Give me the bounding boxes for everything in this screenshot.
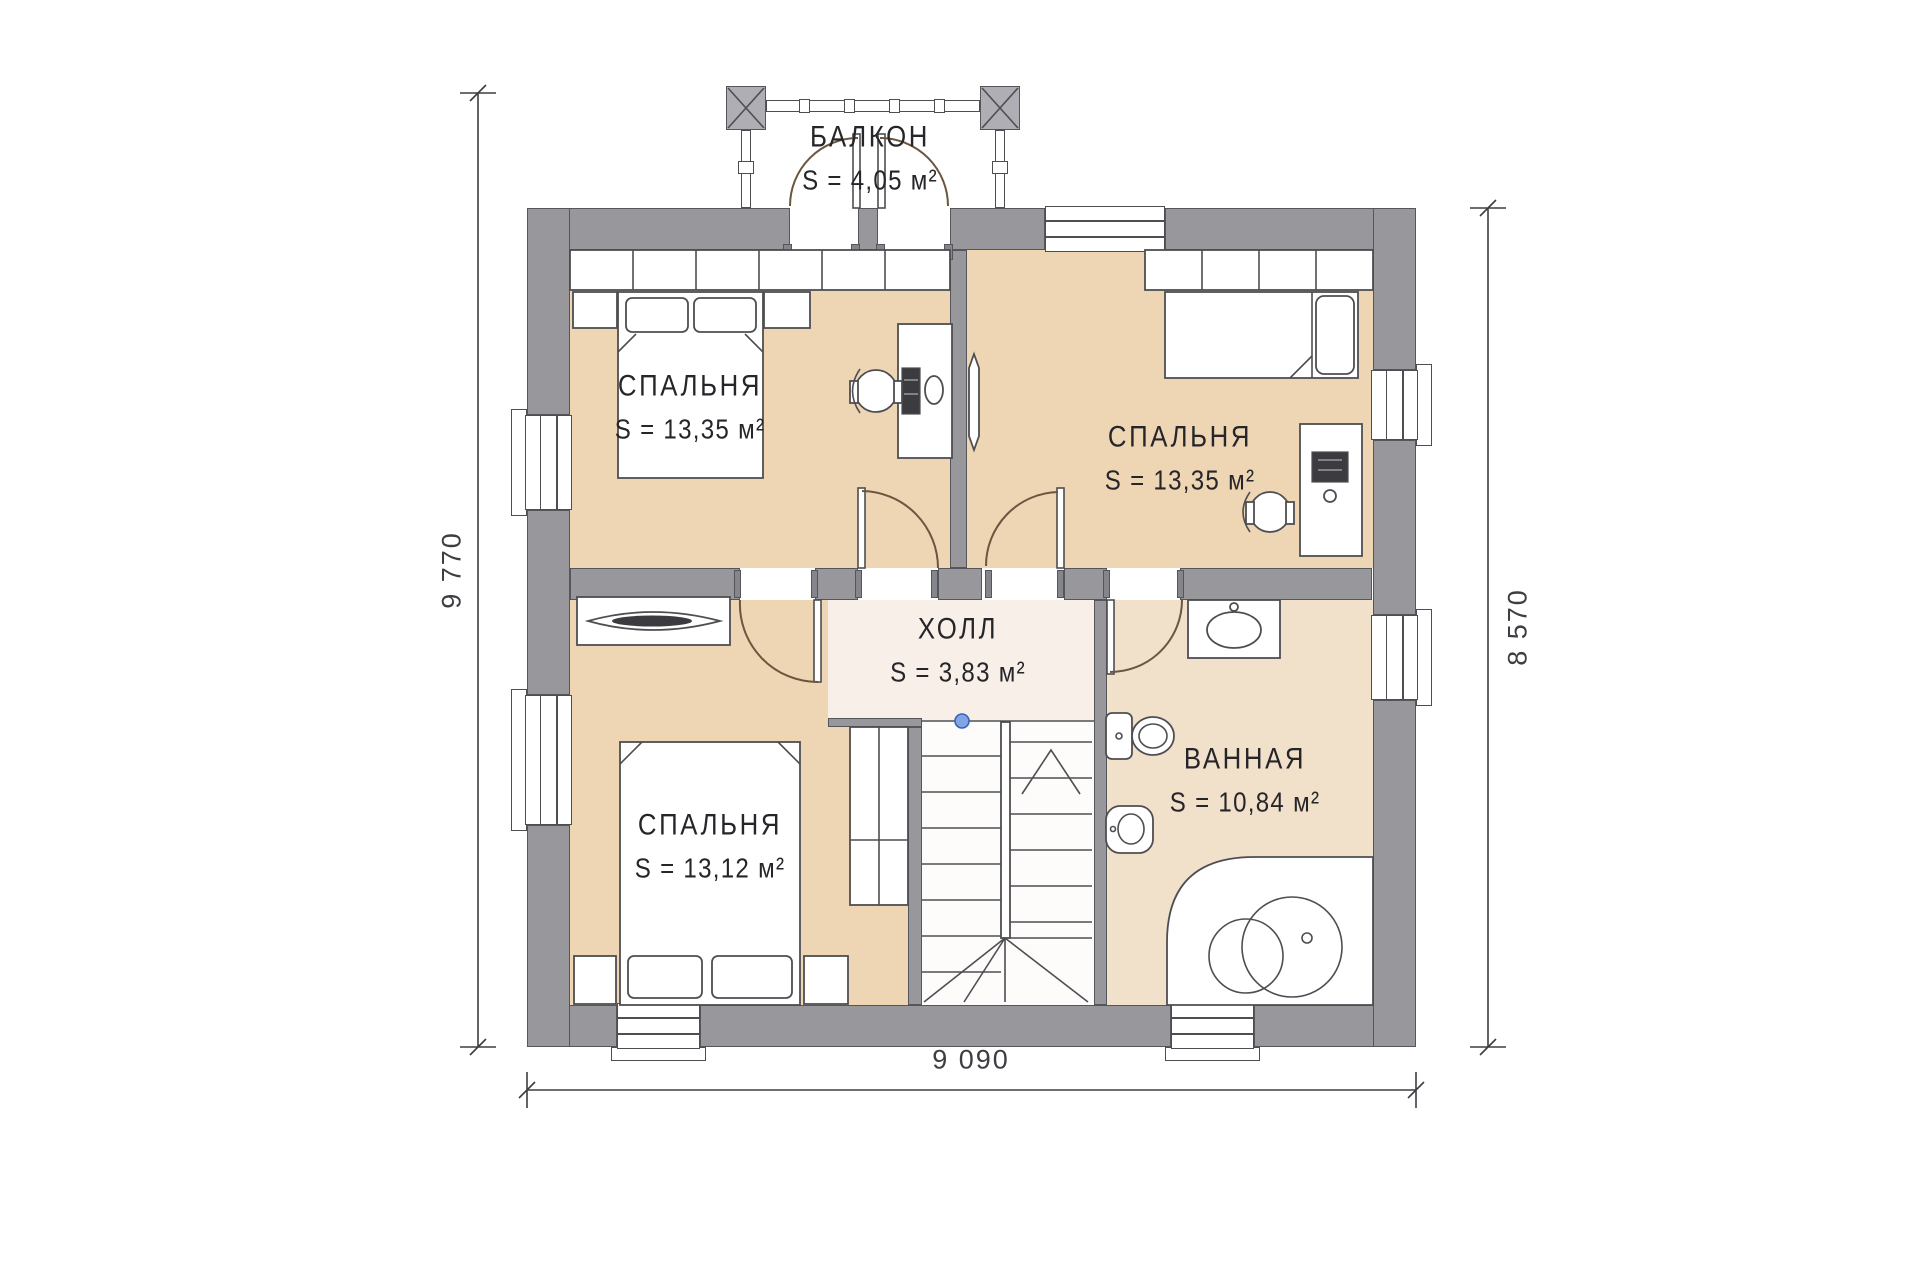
stair-winder-treads [924, 938, 1092, 1002]
bedroom-bottom-left-door-arc [740, 600, 818, 682]
dimension-right-label: 8 570 [1503, 588, 1534, 666]
chair-top-right-seat [1250, 492, 1290, 532]
bedroom-top-right-furniture [969, 250, 1373, 556]
bedroom-top-left-name: СПАЛЬНЯ [615, 364, 766, 409]
bedroom-bottom-left-furniture [574, 597, 908, 1005]
mirror-board-top-right [969, 354, 979, 450]
bedroom-bottom-left-area: S = 13,12 м² [635, 848, 786, 890]
stair-newel-dot [955, 714, 969, 728]
stair-divider [1001, 722, 1010, 938]
vanity-sink [1207, 612, 1261, 648]
chair-tr-armrest-2 [1286, 502, 1294, 524]
vanity-faucet [1230, 603, 1238, 611]
stair-treads-right-flight [1010, 742, 1092, 922]
bedroom-top-right-label: СПАЛЬНЯ S = 13,35 м² [1105, 415, 1256, 502]
hall-area: S = 3,83 м² [890, 652, 1026, 694]
bedroom-top-right-name: СПАЛЬНЯ [1105, 415, 1256, 460]
chair-tr-armrest-1 [1246, 502, 1254, 524]
floor-plan-canvas: БАЛКОН S = 4,05 м² СПАЛЬНЯ S = 13,35 м² … [0, 0, 1929, 1286]
desk-item-top-right [1324, 490, 1336, 502]
dimension-line-right [1470, 200, 1506, 1055]
bidet [1106, 806, 1153, 853]
closet-top-left [570, 250, 950, 290]
balcony-area: S = 4,05 м² [802, 160, 938, 202]
bathroom-label: ВАННАЯ S = 10,84 м² [1170, 737, 1321, 824]
chair-tl-armrest-2 [894, 381, 902, 403]
corner-bathtub [1167, 857, 1373, 1005]
monitor-top-right [1312, 452, 1348, 482]
bathroom-name: ВАННАЯ [1170, 737, 1321, 782]
toilet-tank [1106, 713, 1132, 759]
dimension-line-bottom [519, 1072, 1424, 1108]
bathroom-door-leaf [1107, 600, 1114, 674]
pillow-bl-1 [628, 956, 702, 998]
shelf-decor-core [612, 616, 692, 627]
bedroom-top-right-door-leaf [1057, 488, 1064, 568]
bedroom-top-right-door-arc [986, 492, 1058, 566]
nightstand-tl-west [573, 292, 617, 328]
staircase [922, 714, 1094, 1002]
nightstand-tl-east [764, 292, 810, 328]
bathroom-door-arc [1110, 600, 1182, 672]
bedroom-top-left-area: S = 13,35 м² [615, 409, 766, 451]
dimension-bottom-label: 9 090 [932, 1045, 1010, 1076]
bedroom-bottom-left-name: СПАЛЬНЯ [635, 803, 786, 848]
nightstand-bl-east [804, 956, 848, 1004]
bedroom-top-right-area: S = 13,35 м² [1105, 460, 1256, 502]
stair-direction-arrow [1022, 750, 1080, 794]
pillow-tl-1 [626, 298, 688, 332]
hall-name: ХОЛЛ [890, 607, 1026, 652]
chair-top-left-seat [855, 370, 897, 412]
nightstand-bl-west [574, 956, 616, 1004]
bedroom-bottom-left-door-leaf [814, 600, 821, 682]
pillow-bl-2 [712, 956, 792, 998]
dimension-left-label: 9 770 [437, 531, 468, 609]
pillow-tl-2 [694, 298, 756, 332]
bathroom-area: S = 10,84 м² [1170, 782, 1321, 824]
bedroom-top-left-label: СПАЛЬНЯ S = 13,35 м² [615, 364, 766, 451]
bedroom-top-left-door-arc [862, 491, 938, 568]
desk-lamp-top-left [925, 376, 943, 404]
hall-label: ХОЛЛ S = 3,83 м² [890, 607, 1026, 694]
monitor-top-left [902, 368, 920, 414]
balcony-label: БАЛКОН S = 4,05 м² [802, 115, 938, 202]
balcony-name: БАЛКОН [802, 115, 938, 160]
pillow-tr [1316, 296, 1354, 374]
bedroom-bottom-left-label: СПАЛЬНЯ S = 13,12 м² [635, 803, 786, 890]
bedroom-top-left-door-leaf [858, 488, 865, 568]
stair-treads-left-flight [922, 756, 1001, 972]
